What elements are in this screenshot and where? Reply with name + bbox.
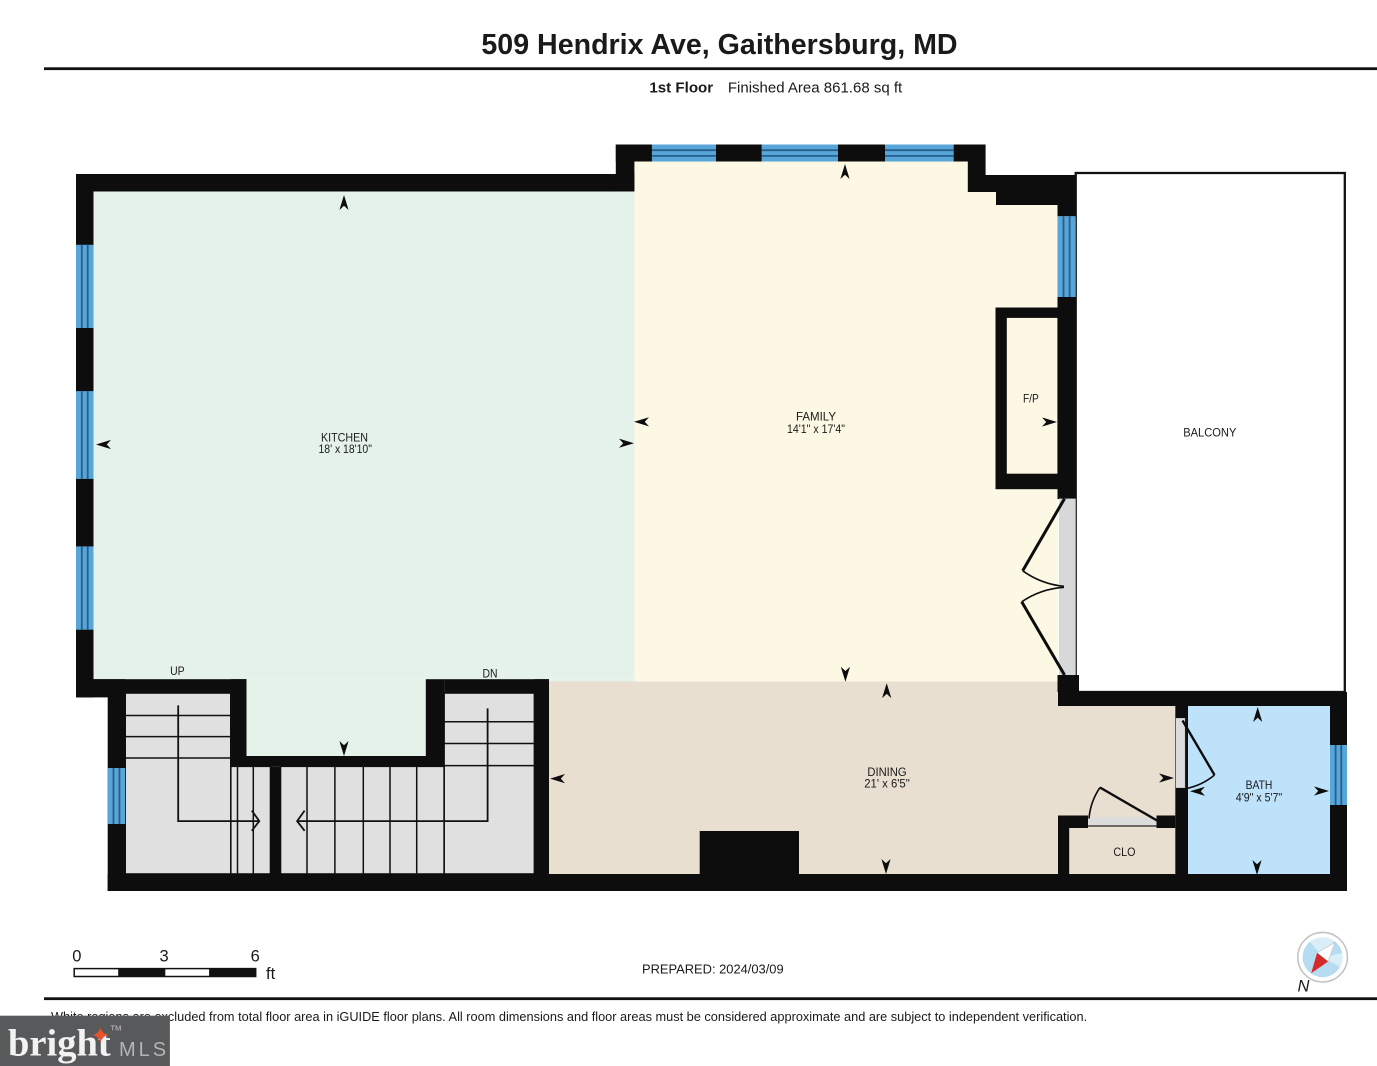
svg-text:18' x 18'10": 18' x 18'10" [319,442,372,456]
svg-text:F/P: F/P [1023,392,1039,406]
svg-text:4'9" x 5'7": 4'9" x 5'7" [1236,790,1282,804]
svg-text:21' x 6'5": 21' x 6'5" [864,776,910,790]
svg-text:1st Floor: 1st Floor [649,80,713,97]
svg-text:509 Hendrix Ave, Gaithersburg,: 509 Hendrix Ave, Gaithersburg, MD [481,29,957,61]
svg-text:PREPARED: 2024/03/09: PREPARED: 2024/03/09 [642,962,784,977]
svg-text:6: 6 [251,948,260,966]
svg-text:UP: UP [170,664,185,678]
svg-text:DN: DN [483,666,498,680]
svg-text:White regions are excluded fro: White regions are excluded from total fl… [51,1009,1087,1024]
svg-text:3: 3 [160,948,169,966]
svg-text:ft: ft [266,965,276,983]
svg-text:14'1" x 17'4": 14'1" x 17'4" [787,422,845,436]
svg-text:Finished Area 861.68 sq ft: Finished Area 861.68 sq ft [728,80,903,97]
svg-text:bright: bright [8,1023,111,1065]
svg-text:0: 0 [72,948,81,966]
svg-text:TM: TM [111,1024,122,1033]
svg-text:BALCONY: BALCONY [1183,425,1236,439]
svg-text:MLS: MLS [119,1039,169,1061]
svg-text:CLO: CLO [1113,845,1135,859]
svg-text:N: N [1298,978,1310,996]
